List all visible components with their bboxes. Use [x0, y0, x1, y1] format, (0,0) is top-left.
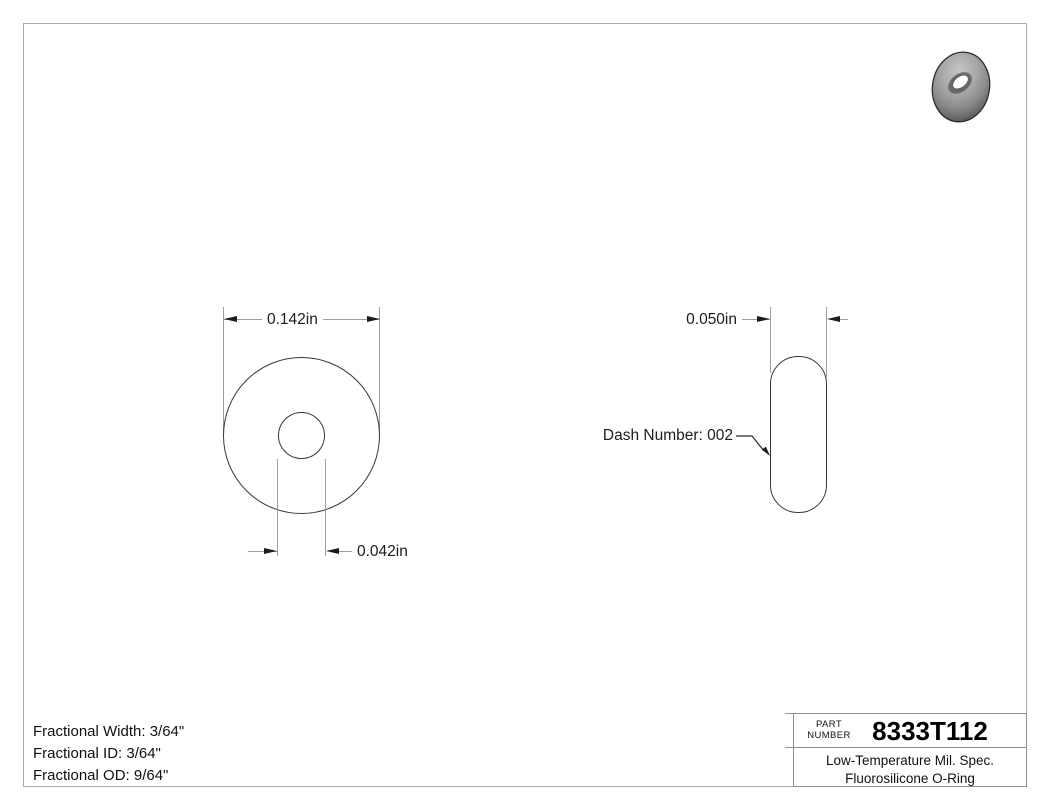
part-number-value: 8333T112	[852, 715, 1008, 747]
dim-arrow-icon	[827, 316, 840, 322]
dimension-line	[840, 319, 848, 320]
dim-arrow-icon	[757, 316, 770, 322]
leader-line	[735, 430, 773, 460]
o-ring-3d-image	[931, 50, 993, 124]
fractional-notes: Fractional Width: 3/64" Fractional ID: 3…	[33, 721, 184, 787]
id-dimension-label: 0.042in	[357, 543, 408, 560]
part-description-line: Fluorosilicone O-Ring	[794, 770, 1026, 788]
dim-arrow-icon	[326, 548, 339, 554]
note-line: Fractional ID: 3/64"	[33, 743, 184, 765]
part-description: Low-Temperature Mil. Spec. Fluorosilicon…	[794, 749, 1026, 788]
extension-line	[325, 459, 326, 556]
extension-line	[277, 459, 278, 556]
part-number-row: PART NUMBER 8333T112	[794, 714, 1026, 748]
cross-section-capsule	[770, 356, 827, 513]
part-description-line: Low-Temperature Mil. Spec.	[794, 752, 1026, 770]
dim-arrow-icon	[224, 316, 237, 322]
dash-number-label: Dash Number: 002	[593, 427, 733, 444]
width-dimension-label: 0.050in	[657, 311, 737, 328]
od-dimension-label: 0.142in	[262, 311, 323, 328]
o-ring-inner-circle	[278, 412, 325, 459]
note-line: Fractional OD: 9/64"	[33, 765, 184, 787]
drawing-page: 0.142in 0.042in 0.050in Dash Number: 002	[0, 0, 1050, 811]
dim-arrow-icon	[367, 316, 380, 322]
extension-line	[223, 307, 224, 437]
title-block-tick	[785, 747, 793, 748]
dimension-line	[339, 551, 352, 552]
leader-arrow-icon	[762, 447, 770, 456]
note-line: Fractional Width: 3/64"	[33, 721, 184, 743]
title-block-tick	[785, 713, 793, 714]
dim-arrow-icon	[264, 548, 277, 554]
extension-line	[379, 307, 380, 437]
title-block: PART NUMBER 8333T112 Low-Temperature Mil…	[793, 713, 1027, 787]
extension-line	[770, 307, 771, 373]
page-frame	[23, 23, 1027, 787]
